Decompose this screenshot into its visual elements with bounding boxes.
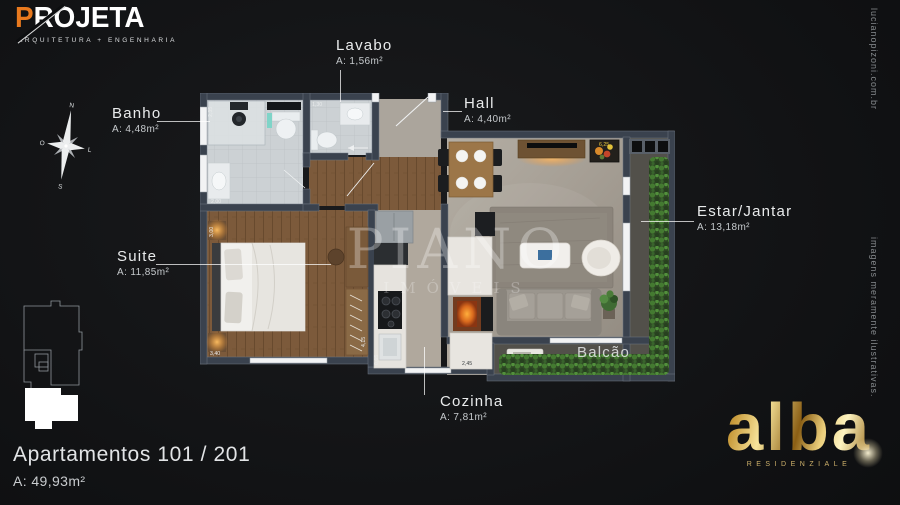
dim-banho-width: 2,35: [208, 107, 214, 117]
lens-flare-icon: [853, 438, 883, 468]
compass-west-label: O: [39, 140, 45, 148]
dim-suite-width: 3,00: [209, 227, 215, 237]
projeta-tagline: ARQUITETURA + ENGENHARIA: [15, 37, 185, 44]
apartment-title-block: Apartamentos 101 / 201 A: 49,93m²: [13, 443, 250, 489]
cozinha-label: Cozinha A: 7,81m²: [440, 394, 503, 423]
estar-name: Estar/Jantar: [697, 204, 792, 220]
banho-window-2: [200, 155, 207, 192]
lavabo-label: Lavabo A: 1,56m²: [336, 38, 392, 67]
balcao-name: Balcão: [577, 345, 630, 361]
banho-window: [200, 107, 207, 145]
suite-label: Suite A: 11,85m²: [117, 249, 169, 278]
apartment-total-area: A: 49,93m²: [13, 473, 250, 489]
hall-label: Hall A: 4,40m²: [464, 96, 511, 125]
projeta-wordmark: PROJETA: [15, 4, 178, 33]
banho-area: A: 4,48m²: [112, 124, 161, 135]
compass-south-label: S: [58, 183, 64, 190]
apartment-title: Apartamentos 101 / 201: [13, 443, 250, 467]
cozinha-area: A: 7,81m²: [440, 412, 503, 423]
balcao-high-windows: [629, 139, 670, 154]
projeta-logo: PROJETA ARQUITETURA + ENGENHARIA: [15, 4, 185, 44]
compass-rose-icon: N S L O: [36, 102, 96, 190]
banho-label: Banho A: 4,48m²: [112, 106, 161, 135]
estar-balcao-glass: [550, 338, 622, 343]
floor-plan: 2,35 2,00 1,30 3,00 3,40 4,15 0,65 2,45 …: [200, 93, 675, 383]
dim-suite-length: 4,15: [361, 337, 367, 347]
suite-name: Suite: [117, 249, 169, 265]
sofa: [497, 289, 601, 335]
compass-north-label: N: [69, 102, 75, 110]
hall-area: A: 4,40m²: [464, 114, 511, 125]
estar-area: A: 13,18m²: [697, 222, 792, 233]
key-plan: [18, 298, 98, 438]
hall-leader-line: [443, 111, 462, 112]
suite-leader-line: [156, 264, 331, 265]
credit-url: lucianopizoni.com.br: [869, 8, 879, 110]
dim-estar-width: 6,25: [599, 142, 609, 148]
cozinha-name: Cozinha: [440, 394, 503, 410]
estar-label: Estar/Jantar A: 13,18m²: [697, 204, 792, 233]
dim-counter-depth: 0,65: [374, 355, 380, 365]
hall-floor: [378, 157, 441, 210]
hedge-right: [649, 157, 669, 375]
dim-lavabo-width: 1,30: [312, 102, 322, 108]
entry-floor: [378, 99, 441, 161]
cozinha-leader-line: [424, 347, 425, 395]
lavabo-leader-line: [340, 70, 341, 102]
lavabo-area: A: 1,56m²: [336, 56, 392, 67]
banho-name: Banho: [112, 106, 161, 122]
tv-console: [518, 140, 585, 158]
compass-east-label: L: [87, 147, 92, 154]
tv: [527, 143, 577, 148]
suite-area: A: 11,85m²: [117, 267, 169, 278]
estar-leader-line: [641, 221, 694, 222]
alba-logo: alba RESIDENZIALE: [703, 396, 895, 468]
estar-glass-door-2: [623, 223, 630, 291]
lavabo-name: Lavabo: [336, 38, 392, 54]
vestibule-floor: [309, 157, 378, 206]
disclaimer-text: imagens meramente ilustrativas.: [869, 237, 879, 398]
hall-name: Hall: [464, 96, 511, 112]
cozinha-door: [405, 368, 451, 373]
dim-banho-depth: 2,00: [211, 199, 221, 205]
balcao-label: Balcão: [577, 345, 630, 361]
dim-suite-depth: 3,40: [210, 351, 220, 357]
banho-leader-line: [157, 121, 210, 122]
suite-window: [250, 358, 327, 363]
dim-cozinha-width: 2,45: [462, 361, 472, 367]
key-plan-unit-highlight: [25, 388, 78, 429]
estar-glass-door: [623, 177, 630, 195]
floor-plan-poster: PROJETA ARQUITETURA + ENGENHARIA N S L O: [0, 0, 900, 505]
dining-table: [449, 142, 493, 197]
